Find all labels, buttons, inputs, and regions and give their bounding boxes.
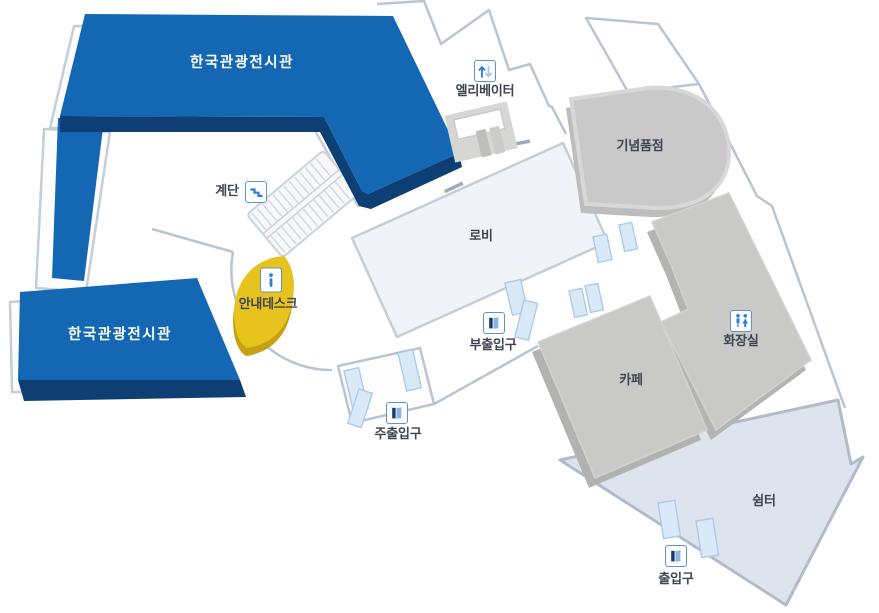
label-elevator: 엘리베이터 (456, 84, 515, 98)
floor-map: 한국관광전시관 한국관광전시관 로비 기념품점 카페 쉼터 안내데스크 계단 엘… (0, 0, 879, 613)
sub-entrance-door-icon (483, 312, 505, 334)
label-lobby: 로비 (469, 229, 493, 243)
stairs-icon (245, 181, 267, 203)
label-restroom: 화장실 (723, 334, 758, 348)
label-entrance: 출입구 (658, 572, 693, 586)
label-info-desk: 안내데스크 (239, 297, 298, 311)
elevator-structure (444, 101, 517, 163)
label-stairs: 계단 (215, 184, 239, 198)
restroom-icon (730, 310, 752, 332)
exhibit-left-extrusion (18, 380, 246, 401)
entrance-door-icon (665, 545, 687, 567)
label-rest-area: 쉼터 (752, 494, 776, 508)
floor-map-svg (0, 0, 879, 613)
label-exhibit-left: 한국관광전시관 (68, 328, 172, 344)
area-exhibit-top (60, 14, 459, 194)
info-icon (260, 268, 282, 293)
elevator-icon (474, 60, 496, 82)
label-main-entrance: 주출입구 (374, 427, 421, 441)
label-cafe: 카페 (619, 373, 643, 387)
label-exhibit-top: 한국관광전시관 (190, 56, 294, 72)
label-sub-entrance: 부출입구 (469, 338, 516, 352)
outline-upper-parallelogram (586, 18, 699, 92)
main-entrance-door-icon (386, 402, 408, 424)
label-gift-shop: 기념품점 (616, 139, 663, 153)
